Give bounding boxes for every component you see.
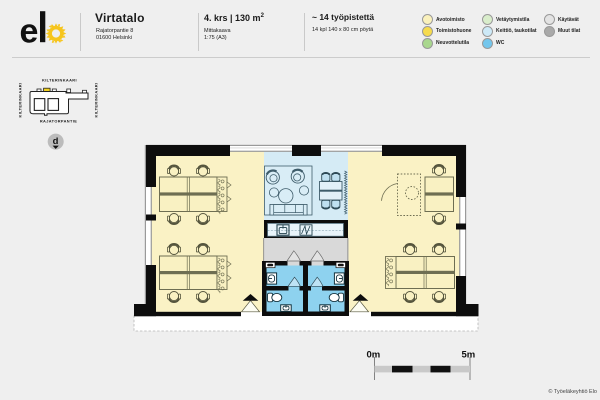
svg-text:0m: 0m [367, 350, 381, 361]
svg-text:5m: 5m [462, 350, 476, 361]
